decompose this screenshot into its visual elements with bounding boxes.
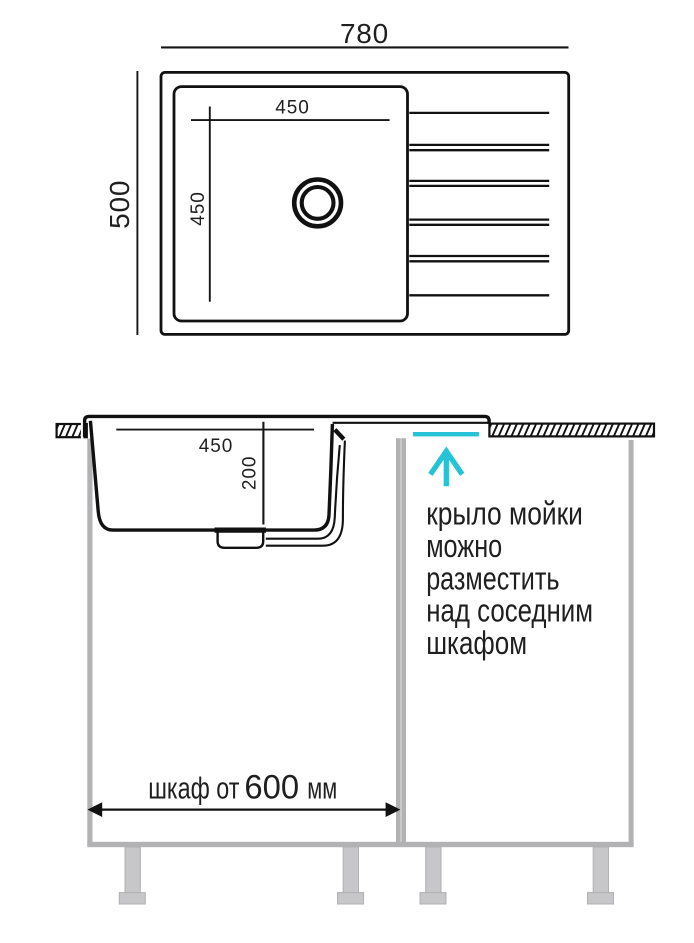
svg-text:450: 450 [188,191,209,225]
svg-text:200: 200 [239,456,260,490]
svg-text:780: 780 [340,18,389,49]
svg-text:450: 450 [199,436,233,457]
svg-text:600: 600 [244,769,299,807]
svg-text:крыло мойки: крыло мойки [426,496,583,532]
svg-text:разместить: разместить [426,560,559,596]
svg-text:можно: можно [426,528,502,564]
svg-text:шкафом: шкафом [426,625,527,661]
svg-text:500: 500 [104,180,135,229]
svg-text:над соседним: над соседним [426,593,593,629]
svg-text:мм: мм [307,771,337,806]
svg-text:шкаф от: шкаф от [148,771,239,806]
svg-text:450: 450 [275,97,309,118]
